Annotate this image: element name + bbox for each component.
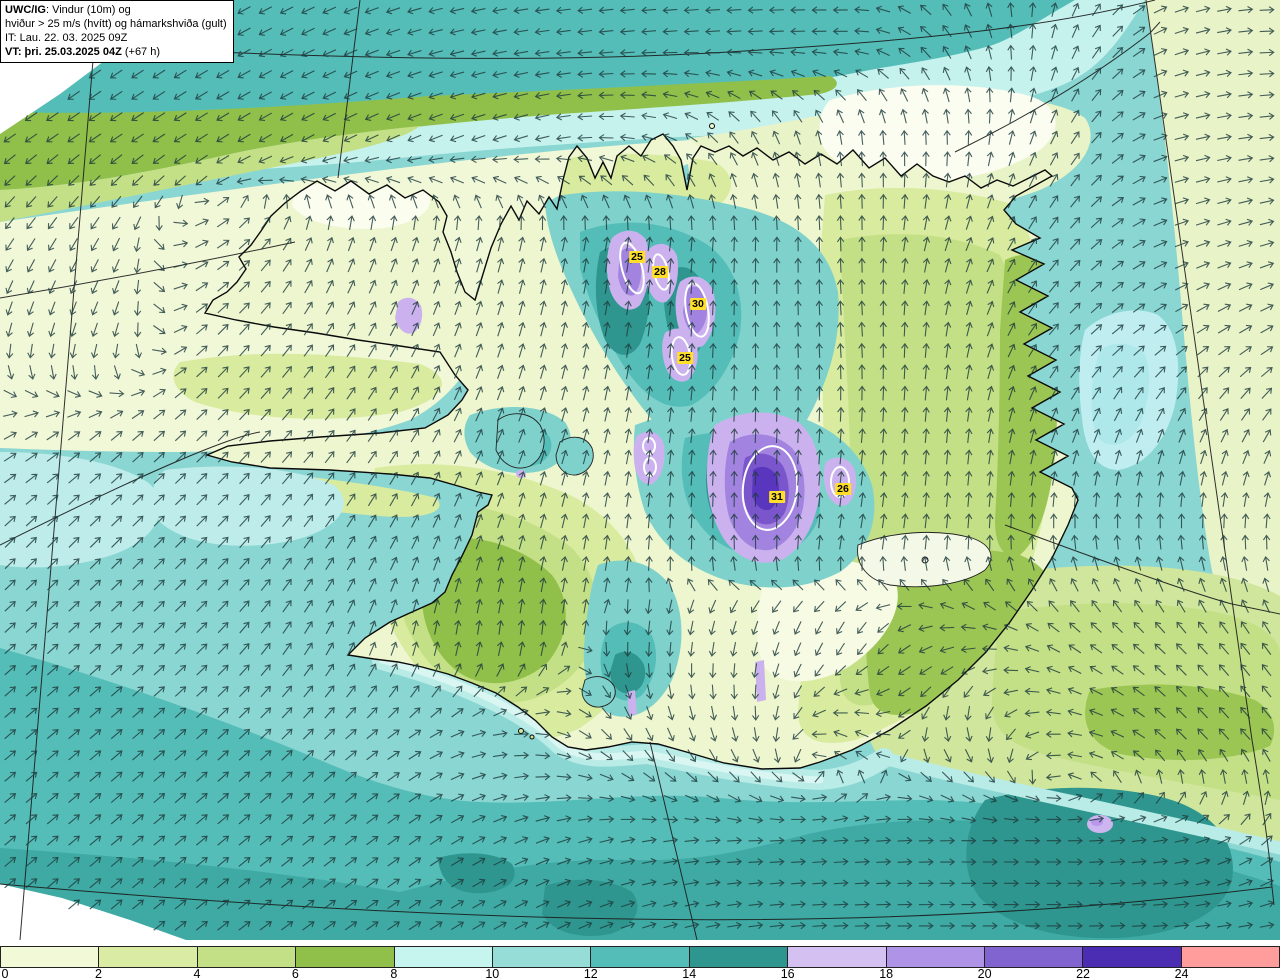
colorbar-cell — [1, 947, 99, 967]
gust-max-label: 31 — [769, 491, 785, 503]
colorbar-cell — [1083, 947, 1181, 967]
title-line-2: hviður > 25 m/s (hvítt) og hámarkshviða … — [5, 17, 227, 31]
colorbar-tick-label: 18 — [879, 967, 893, 978]
colorbar-tick-label: 2 — [95, 967, 102, 978]
colorbar-tick-label: 16 — [781, 967, 795, 978]
gust-max-label: 25 — [629, 251, 645, 263]
weather-map-screen: UWC/IG: Vindur (10m) og hviður > 25 m/s … — [0, 0, 1280, 978]
colorbar-cell — [985, 947, 1083, 967]
colorbar-tick-label: 8 — [390, 967, 397, 978]
colorbar-cell — [198, 947, 296, 967]
colorbar-tick-label: 24 — [1175, 967, 1189, 978]
colorbar-tick-label: 14 — [682, 967, 696, 978]
colorbar-cell — [296, 947, 394, 967]
colorbar-tick-label: 20 — [978, 967, 992, 978]
title-line-4: VT: þri. 25.03.2025 04Z (+67 h) — [5, 45, 227, 59]
colorbar-cell — [99, 947, 197, 967]
colorbar-swatches — [0, 946, 1280, 968]
gust-max-label: 28 — [652, 266, 668, 278]
island-vestmannaeyjar — [530, 735, 534, 739]
title-line-3: IT: Lau. 22. 03. 2025 09Z — [5, 31, 227, 45]
colorbar-tick-label: 22 — [1076, 967, 1090, 978]
colorbar-tick-label: 6 — [292, 967, 299, 978]
gust-max-label: 30 — [690, 298, 706, 310]
colorbar-cell — [493, 947, 591, 967]
island-vestmannaeyjar — [519, 729, 524, 734]
colorbar-cell — [1182, 947, 1279, 967]
weather-map — [0, 0, 1280, 940]
title-box: UWC/IG: Vindur (10m) og hviður > 25 m/s … — [0, 0, 234, 63]
colorbar-cell — [887, 947, 985, 967]
colorbar-cell — [690, 947, 788, 967]
gust-max-label: 26 — [835, 483, 851, 495]
title-line-1: UWC/IG: Vindur (10m) og — [5, 3, 227, 17]
colorbar-tick-label: 10 — [485, 967, 499, 978]
island-grimsey — [710, 124, 715, 129]
colorbar-tick-label: 4 — [193, 967, 200, 978]
colorbar-cell — [395, 947, 493, 967]
colorbar-tick-label: 12 — [584, 967, 598, 978]
wind-speed-colorbar: 024681012141618202224 — [0, 940, 1280, 978]
gust-max-label: 25 — [677, 352, 693, 364]
colorbar-cell — [591, 947, 689, 967]
colorbar-tick-label: 0 — [2, 967, 9, 978]
colorbar-cell — [788, 947, 886, 967]
